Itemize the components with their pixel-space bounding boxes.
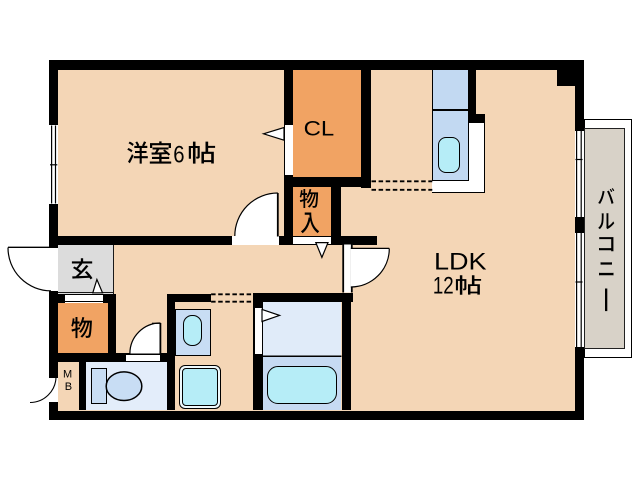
svg-text:12: 12 [433,273,454,300]
svg-text:M: M [63,369,72,381]
svg-text:LDK: LDK [434,249,487,276]
svg-text:CL: CL [304,116,335,141]
svg-text:B: B [65,381,72,393]
svg-text:6: 6 [173,142,184,169]
